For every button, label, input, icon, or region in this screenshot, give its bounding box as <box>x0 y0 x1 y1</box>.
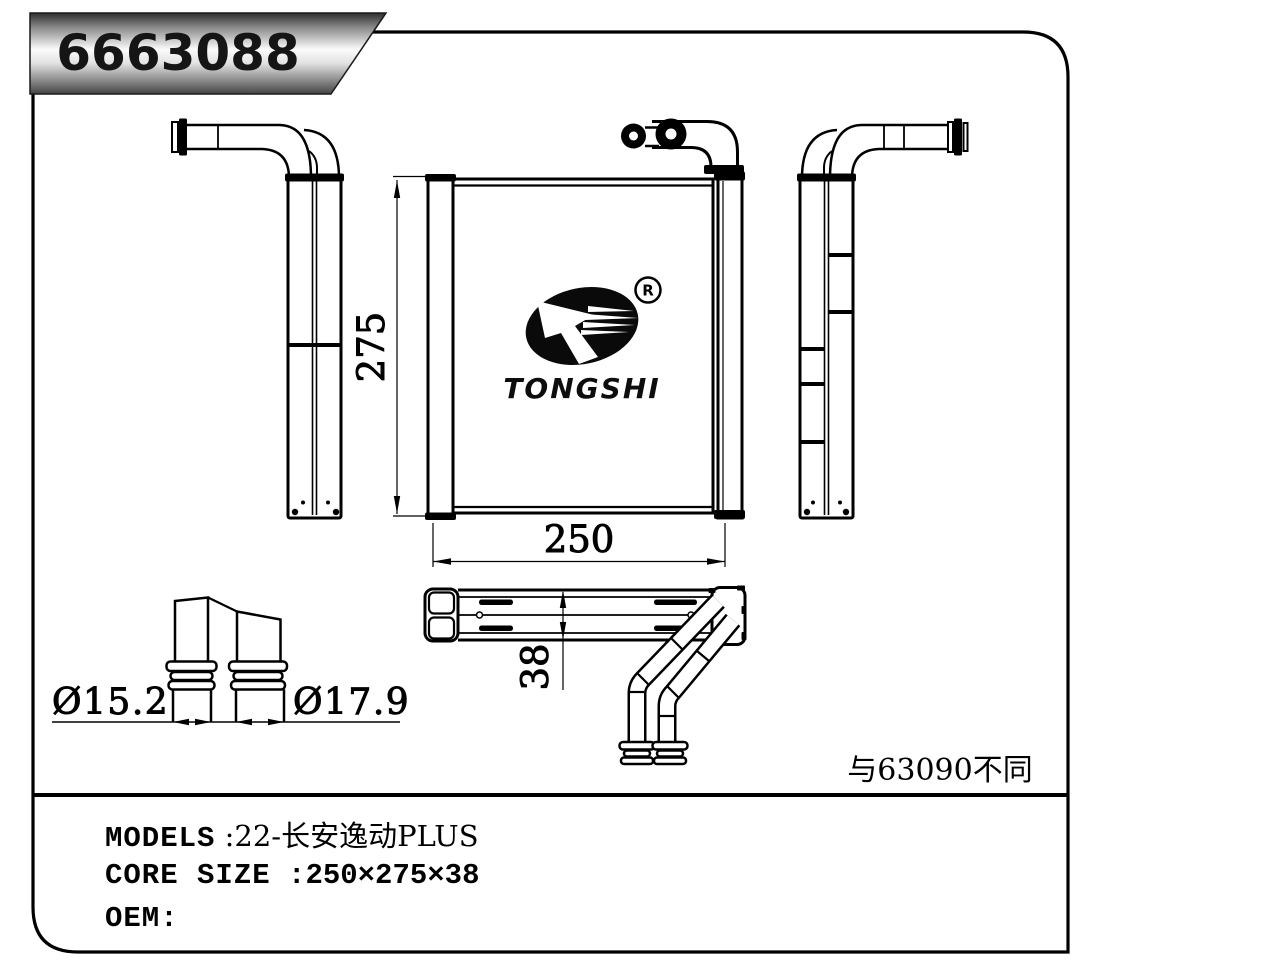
info-row-core-size: CORE SIZE :250×275×38 <box>105 856 479 896</box>
right-side-view <box>797 119 968 519</box>
dim-width-label: 250 <box>544 518 615 561</box>
info-row-oem: OEM: <box>105 896 479 936</box>
info-row-models: MODELS :22-长安逸动PLUS <box>105 816 479 856</box>
core-size-value: :250×275×38 <box>271 859 480 892</box>
dim-height-label: 275 <box>350 312 393 383</box>
left-side-view <box>172 119 344 519</box>
bottom-view <box>425 586 747 765</box>
registered-mark: R <box>642 282 654 300</box>
oem-label: OEM: <box>105 902 179 935</box>
info-block: MODELS :22-长安逸动PLUS CORE SIZE :250×275×3… <box>105 816 479 936</box>
brand-logo: R TONGSHI <box>503 277 660 405</box>
pipe-fitting-detail: Ø15.2 Ø17.9 <box>52 598 410 726</box>
dimension-width: 250 <box>433 518 725 567</box>
models-value: :22-长安逸动PLUS <box>215 819 478 853</box>
difference-note: 与63090不同 <box>847 753 1032 788</box>
models-label: MODELS <box>105 822 215 855</box>
sheet-border <box>33 32 1068 952</box>
core-size-label: CORE SIZE <box>105 859 271 892</box>
brand-name: TONGSHI <box>503 372 660 405</box>
part-number: 6663088 <box>56 24 300 82</box>
dimension-height: 275 <box>350 177 428 517</box>
dim-depth-label: 38 <box>514 643 557 690</box>
dim-pipe-large-label: Ø17.9 <box>293 682 410 723</box>
dim-pipe-small-label: Ø15.2 <box>52 682 169 723</box>
drawing-sheet: 6663088 <box>0 0 1266 968</box>
part-number-banner: 6663088 <box>30 13 386 94</box>
